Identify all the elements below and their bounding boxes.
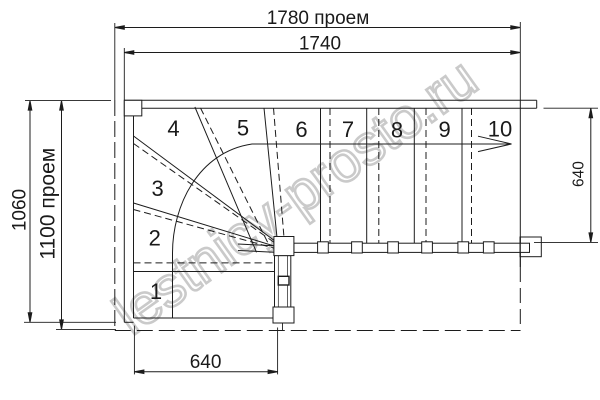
svg-text:1780 проем: 1780 проем [267, 8, 370, 29]
svg-text:4: 4 [167, 116, 179, 141]
svg-text:640: 640 [571, 161, 588, 187]
svg-text:2: 2 [149, 225, 161, 250]
svg-text:5: 5 [237, 116, 249, 141]
svg-text:10: 10 [488, 117, 512, 142]
svg-text:3: 3 [151, 176, 163, 201]
svg-text:7: 7 [342, 117, 354, 142]
svg-text:1740: 1740 [299, 34, 341, 55]
svg-text:6: 6 [295, 117, 307, 142]
svg-text:9: 9 [438, 117, 450, 142]
svg-text:8: 8 [391, 118, 403, 143]
svg-text:1060: 1060 [10, 189, 31, 231]
svg-text:1: 1 [150, 279, 162, 304]
svg-text:640: 640 [190, 352, 222, 373]
svg-text:1100 проем: 1100 проем [37, 148, 60, 260]
